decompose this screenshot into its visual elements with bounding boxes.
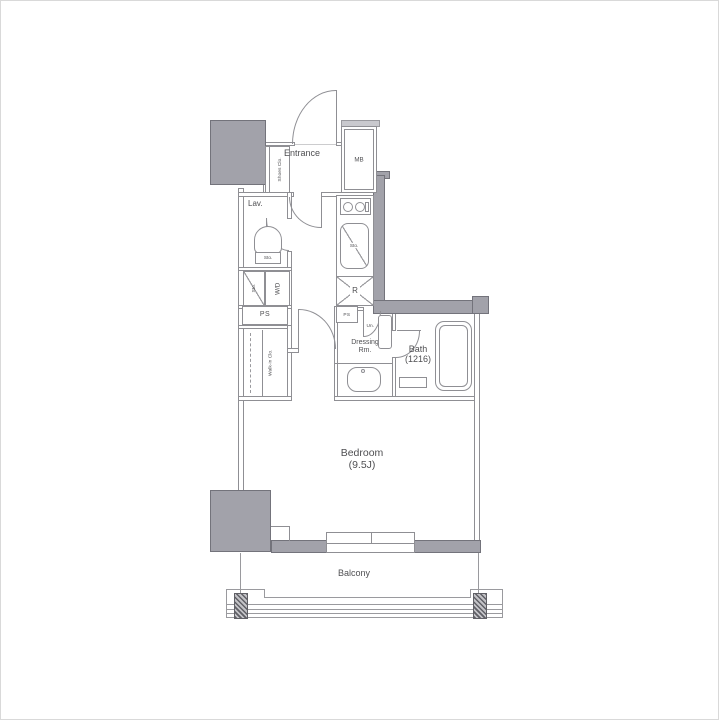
door-leaf xyxy=(321,197,322,228)
shoes-closet-label: Shoes Clo. xyxy=(274,156,286,184)
dressing-room-label-line1: Dressing xyxy=(351,339,379,347)
vanity-counter-edge xyxy=(335,363,393,364)
bath-label-size: (1216) xyxy=(405,354,431,364)
toilet-tank: Sto. xyxy=(255,252,281,264)
wall xyxy=(238,325,292,329)
bathtub-inner xyxy=(439,325,468,387)
stove-panel xyxy=(365,202,369,212)
entrance-door-arc xyxy=(292,90,336,144)
toilet-bowl xyxy=(254,226,282,254)
meter-box: MB xyxy=(341,126,377,193)
balcony-label: Balcony xyxy=(338,568,370,578)
faucet xyxy=(361,369,365,373)
closet-divider xyxy=(262,330,263,396)
pipe-space-mid: PS xyxy=(336,306,358,323)
door-leaf xyxy=(336,90,337,145)
balcony-side-wall xyxy=(240,553,241,598)
balcony-rail xyxy=(470,589,471,598)
bedroom-label-name: Bedroom xyxy=(341,447,384,459)
balcony-rail-end xyxy=(502,589,503,618)
dressing-room-label-line2: Rm. xyxy=(359,347,372,355)
wall xyxy=(238,188,244,492)
wall xyxy=(238,396,292,401)
kitchen-sink: Sto. xyxy=(340,223,369,269)
balcony-rail xyxy=(470,589,502,590)
washer-dryer-label: W/D xyxy=(274,282,281,294)
floor-plan: MB Shoes Clo. Entrance Lav. Sto. Sto. W/… xyxy=(0,0,719,720)
structural-wall xyxy=(271,540,331,553)
balcony-rail xyxy=(226,604,502,605)
kitchen-storage-label: Sto. xyxy=(350,243,360,249)
entrance-label: Entrance xyxy=(284,148,320,158)
structural-wall xyxy=(411,540,481,553)
laundry-pan xyxy=(378,315,392,349)
bath-step xyxy=(399,377,427,388)
bedroom-door-arc xyxy=(299,309,336,349)
toilet-storage-label: Sto. xyxy=(264,255,273,261)
refrigerator-space: R xyxy=(336,276,374,306)
pipe-space-mid-label: PS xyxy=(343,312,350,318)
balcony-rail xyxy=(264,597,470,598)
structural-wall xyxy=(373,175,385,309)
bath-label-name: Bath xyxy=(409,344,428,354)
washer-dryer-space: W/D xyxy=(265,271,290,306)
hall-door-arc xyxy=(289,197,321,228)
balcony-side-wall xyxy=(478,553,479,598)
closet-hanger-rail xyxy=(250,333,251,393)
wall xyxy=(334,396,478,401)
laundry-storage: Sto. xyxy=(243,271,265,306)
stove xyxy=(340,198,371,215)
corner-step-line xyxy=(289,526,290,541)
lavatory-label: Lav. xyxy=(248,199,263,208)
bedroom-label-size: (9.5J) xyxy=(349,459,376,471)
balcony-rail xyxy=(226,613,502,614)
balcony-divider-post xyxy=(473,593,487,619)
walk-in-closet-label: Walk-in Clo. xyxy=(266,344,273,381)
window-track xyxy=(327,543,414,544)
balcony-rail xyxy=(226,617,502,618)
balcony-divider-post xyxy=(234,593,248,619)
bathtub xyxy=(435,321,472,391)
bath-label: Bath (1216) xyxy=(398,342,438,366)
bedroom-label: Bedroom (9.5J) xyxy=(318,444,406,474)
pipe-space-left: PS xyxy=(242,306,288,325)
balcony-rail xyxy=(226,589,264,590)
meter-box-label: MB xyxy=(346,134,373,185)
wall xyxy=(474,312,480,542)
balcony-rail-end xyxy=(226,589,227,618)
laundry-storage-label: Sto. xyxy=(251,284,257,293)
wall xyxy=(287,325,292,401)
balcony-rail xyxy=(226,609,502,610)
corner-step-line xyxy=(271,526,290,527)
structural-wall xyxy=(373,300,477,314)
burner xyxy=(355,202,365,212)
refrigerator-label: R xyxy=(350,286,360,295)
threshold-line xyxy=(294,144,337,145)
balcony-window xyxy=(326,532,415,553)
pillar xyxy=(210,120,266,185)
pillar xyxy=(210,490,271,552)
unit-label: Un. xyxy=(366,323,373,329)
window-stile xyxy=(371,533,372,543)
pipe-space-left-label: PS xyxy=(260,311,270,319)
structural-wall xyxy=(472,296,489,314)
burner xyxy=(343,202,353,212)
